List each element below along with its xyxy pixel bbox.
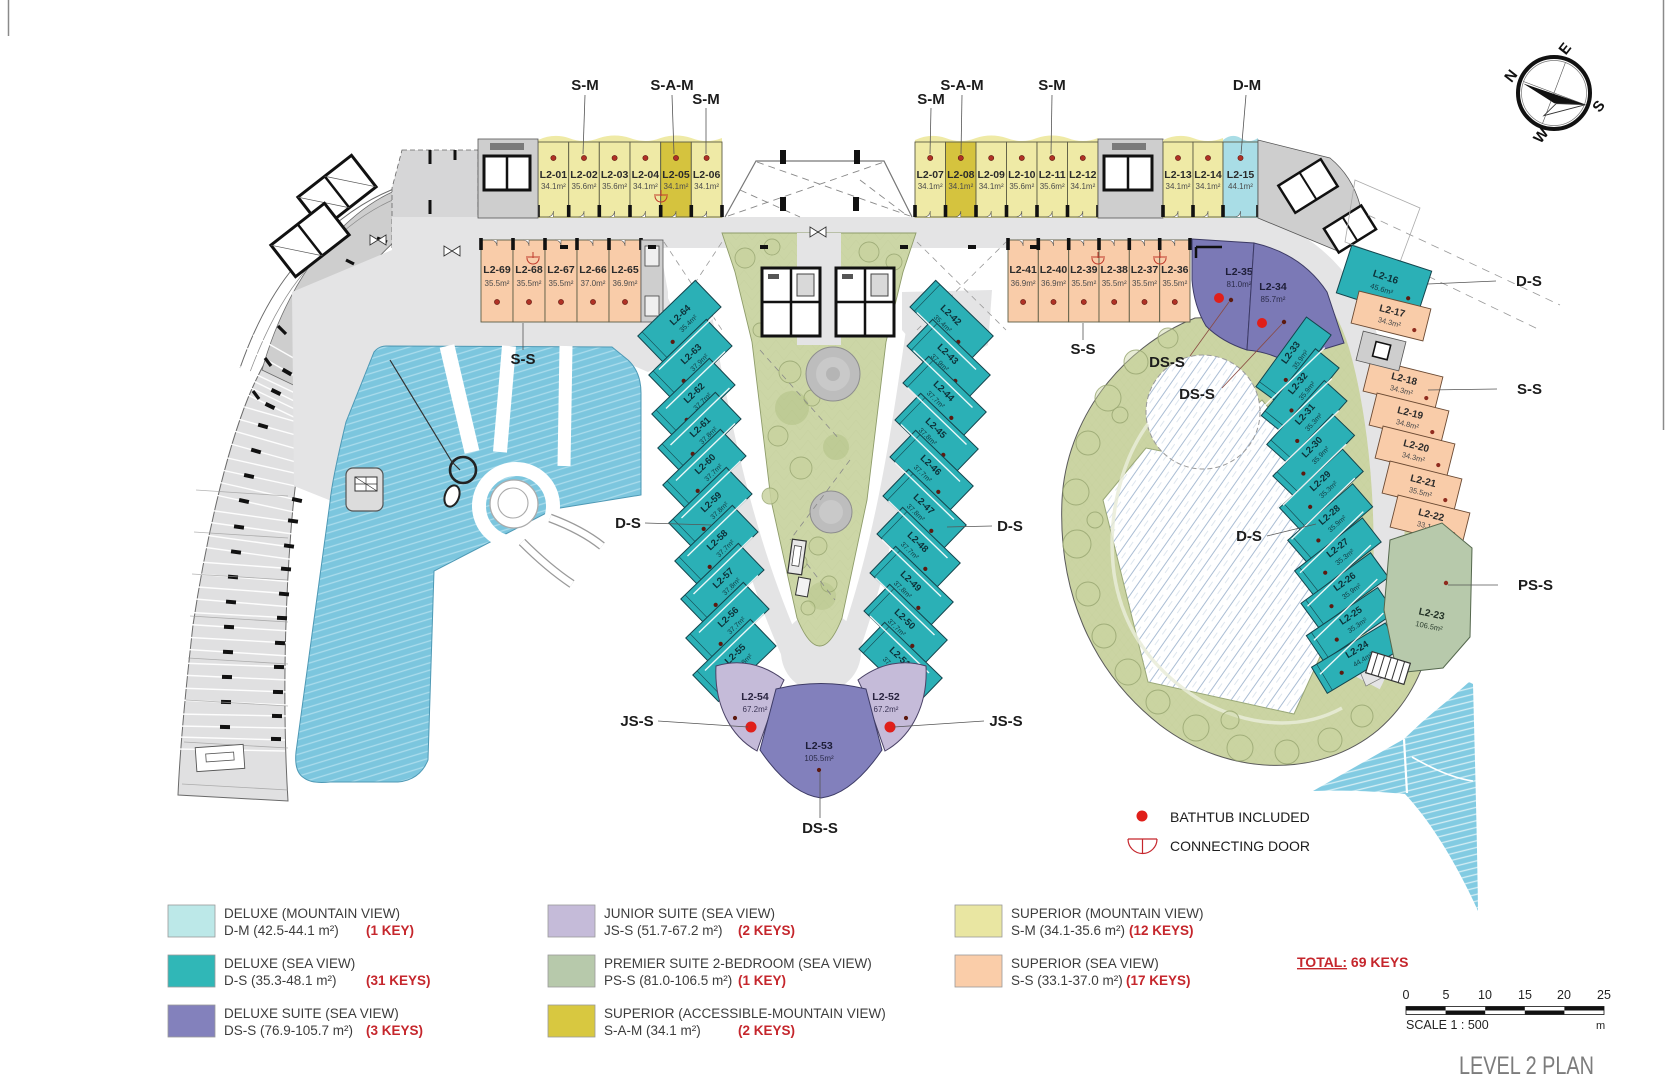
svg-text:(31 KEYS): (31 KEYS) — [366, 973, 431, 988]
svg-text:L2-04: L2-04 — [632, 169, 660, 181]
svg-text:35.5m²: 35.5m² — [517, 279, 542, 288]
svg-text:35.5m²: 35.5m² — [1162, 279, 1187, 288]
svg-text:L2-08: L2-08 — [947, 169, 975, 181]
svg-text:34.1m²: 34.1m² — [1196, 182, 1221, 191]
svg-text:L2-11: L2-11 — [1039, 169, 1066, 181]
svg-text:34.1m²: 34.1m² — [918, 182, 943, 191]
svg-text:LEVEL 2 PLAN: LEVEL 2 PLAN — [1459, 1052, 1594, 1080]
svg-text:10: 10 — [1478, 988, 1492, 1002]
svg-text:S-M: S-M — [692, 91, 720, 108]
svg-text:S-A-M (34.1 m²): S-A-M (34.1 m²) — [604, 1023, 701, 1038]
svg-text:L2-07: L2-07 — [916, 169, 944, 181]
svg-text:L2-52: L2-52 — [872, 691, 900, 703]
svg-text:DELUXE (SEA VIEW): DELUXE (SEA VIEW) — [224, 956, 355, 971]
svg-text:67.2m²: 67.2m² — [743, 705, 768, 714]
svg-text:5: 5 — [1443, 988, 1450, 1002]
svg-text:L2-41: L2-41 — [1009, 264, 1037, 276]
svg-text:DS-S: DS-S — [802, 820, 838, 837]
svg-text:DELUXE SUITE (SEA VIEW): DELUXE SUITE (SEA VIEW) — [224, 1006, 399, 1021]
svg-text:S-S: S-S — [1070, 341, 1095, 358]
svg-text:L2-12: L2-12 — [1069, 169, 1097, 181]
svg-text:JS-S: JS-S — [989, 713, 1022, 730]
svg-text:CONNECTING DOOR: CONNECTING DOOR — [1170, 838, 1310, 854]
svg-text:D-S: D-S — [1236, 528, 1262, 545]
svg-text:DS-S: DS-S — [1149, 354, 1185, 371]
svg-text:25: 25 — [1597, 988, 1611, 1002]
svg-text:L2-34: L2-34 — [1259, 281, 1287, 293]
svg-text:35.5m²: 35.5m² — [1132, 279, 1157, 288]
svg-text:(1 KEY): (1 KEY) — [366, 923, 414, 938]
svg-text:L2-69: L2-69 — [483, 264, 511, 276]
svg-text:34.1m²: 34.1m² — [541, 182, 566, 191]
svg-text:D-S: D-S — [997, 518, 1023, 535]
svg-text:JS-S (51.7-67.2 m²): JS-S (51.7-67.2 m²) — [604, 923, 723, 938]
svg-text:L2-67: L2-67 — [547, 264, 575, 276]
svg-text:m: m — [1596, 1020, 1605, 1032]
svg-text:D-M: D-M — [1233, 77, 1261, 94]
svg-text:D-M (42.5-44.1 m²): D-M (42.5-44.1 m²) — [224, 923, 339, 938]
svg-text:D-S (35.3-48.1 m²): D-S (35.3-48.1 m²) — [224, 973, 337, 988]
svg-text:34.1m²: 34.1m² — [979, 182, 1004, 191]
svg-text:35.5m²: 35.5m² — [485, 279, 510, 288]
svg-text:L2-03: L2-03 — [601, 169, 629, 181]
svg-text:S-M: S-M — [571, 77, 599, 94]
svg-text:S-M: S-M — [1038, 77, 1066, 94]
svg-text:L2-05: L2-05 — [662, 169, 690, 181]
svg-text:34.1m²: 34.1m² — [633, 182, 658, 191]
svg-text:(3 KEYS): (3 KEYS) — [366, 1023, 423, 1038]
svg-text:44.1m²: 44.1m² — [1228, 182, 1253, 191]
svg-text:(2 KEYS): (2 KEYS) — [738, 923, 795, 938]
svg-text:L2-65: L2-65 — [611, 264, 639, 276]
svg-text:TOTAL: 69 KEYS: TOTAL: 69 KEYS — [1297, 954, 1409, 970]
svg-text:SUPERIOR (SEA VIEW): SUPERIOR (SEA VIEW) — [1011, 956, 1159, 971]
svg-text:34.1m²: 34.1m² — [664, 182, 689, 191]
svg-text:L2-36: L2-36 — [1161, 264, 1189, 276]
svg-text:L2-38: L2-38 — [1100, 264, 1128, 276]
svg-text:DS-S: DS-S — [1179, 386, 1215, 403]
svg-text:L2-40: L2-40 — [1040, 264, 1068, 276]
svg-text:PREMIER SUITE 2-BEDROOM (SEA V: PREMIER SUITE 2-BEDROOM (SEA VIEW) — [604, 956, 872, 971]
svg-text:S-A-M: S-A-M — [940, 77, 983, 94]
svg-text:36.9m²: 36.9m² — [1041, 279, 1066, 288]
svg-text:L2-14: L2-14 — [1194, 169, 1222, 181]
svg-text:81.0m²: 81.0m² — [1227, 280, 1252, 289]
svg-text:0: 0 — [1403, 988, 1410, 1002]
svg-text:DS-S (76.9-105.7 m²): DS-S (76.9-105.7 m²) — [224, 1023, 353, 1038]
svg-text:67.2m²: 67.2m² — [874, 705, 899, 714]
svg-text:(12 KEYS): (12 KEYS) — [1129, 923, 1194, 938]
svg-text:SUPERIOR (ACCESSIBLE-MOUNTAIN: SUPERIOR (ACCESSIBLE-MOUNTAIN VIEW) — [604, 1006, 886, 1021]
svg-text:S-A-M: S-A-M — [650, 77, 693, 94]
svg-text:85.7m²: 85.7m² — [1261, 295, 1286, 304]
svg-text:35.6m²: 35.6m² — [1040, 182, 1065, 191]
svg-text:(2 KEYS): (2 KEYS) — [738, 1023, 795, 1038]
svg-text:37.0m²: 37.0m² — [581, 279, 606, 288]
svg-text:BATHTUB INCLUDED: BATHTUB INCLUDED — [1170, 809, 1310, 825]
svg-text:JUNIOR SUITE (SEA VIEW): JUNIOR SUITE (SEA VIEW) — [604, 906, 775, 921]
svg-text:L2-66: L2-66 — [579, 264, 607, 276]
svg-text:L2-68: L2-68 — [515, 264, 543, 276]
svg-text:35.6m²: 35.6m² — [602, 182, 627, 191]
svg-text:L2-06: L2-06 — [693, 169, 721, 181]
svg-text:PS-S: PS-S — [1518, 577, 1553, 594]
svg-text:15: 15 — [1518, 988, 1532, 1002]
svg-text:JS-S: JS-S — [620, 713, 653, 730]
svg-text:L2-53: L2-53 — [805, 740, 833, 752]
svg-text:34.1m²: 34.1m² — [948, 182, 973, 191]
svg-text:D-S: D-S — [615, 515, 641, 532]
svg-text:35.5m²: 35.5m² — [549, 279, 574, 288]
svg-text:S-S (33.1-37.0 m²): S-S (33.1-37.0 m²) — [1011, 973, 1123, 988]
svg-text:SCALE 1 : 500: SCALE 1 : 500 — [1406, 1018, 1489, 1032]
svg-text:L2-09: L2-09 — [977, 169, 1005, 181]
svg-text:L2-13: L2-13 — [1164, 169, 1192, 181]
svg-text:L2-39: L2-39 — [1070, 264, 1098, 276]
svg-text:35.5m²: 35.5m² — [1071, 279, 1096, 288]
svg-text:S-S: S-S — [510, 351, 535, 368]
svg-text:D-S: D-S — [1516, 273, 1542, 290]
svg-text:35.6m²: 35.6m² — [1009, 182, 1034, 191]
svg-text:34.1m²: 34.1m² — [1070, 182, 1095, 191]
svg-text:36.9m²: 36.9m² — [613, 279, 638, 288]
svg-text:L2-01: L2-01 — [540, 169, 568, 181]
svg-text:105.5m²: 105.5m² — [804, 754, 834, 763]
svg-text:DELUXE (MOUNTAIN VIEW): DELUXE (MOUNTAIN VIEW) — [224, 906, 400, 921]
svg-text:35.5m²: 35.5m² — [1102, 279, 1127, 288]
svg-text:PS-S (81.0-106.5 m²): PS-S (81.0-106.5 m²) — [604, 973, 732, 988]
svg-text:S-M (34.1-35.6 m²): S-M (34.1-35.6 m²) — [1011, 923, 1125, 938]
svg-text:SUPERIOR (MOUNTAIN VIEW): SUPERIOR (MOUNTAIN VIEW) — [1011, 906, 1204, 921]
svg-text:L2-02: L2-02 — [570, 169, 598, 181]
svg-text:36.9m²: 36.9m² — [1011, 279, 1036, 288]
svg-text:L2-37: L2-37 — [1131, 264, 1159, 276]
svg-text:35.6m²: 35.6m² — [572, 182, 597, 191]
svg-text:34.1m²: 34.1m² — [694, 182, 719, 191]
svg-text:20: 20 — [1557, 988, 1571, 1002]
svg-text:S-S: S-S — [1517, 381, 1542, 398]
svg-text:34.1m²: 34.1m² — [1166, 182, 1191, 191]
svg-text:L2-15: L2-15 — [1227, 169, 1255, 181]
svg-text:(17 KEYS): (17 KEYS) — [1126, 973, 1191, 988]
svg-text:L2-35: L2-35 — [1225, 266, 1253, 278]
svg-text:L2-10: L2-10 — [1008, 169, 1036, 181]
svg-text:L2-54: L2-54 — [741, 691, 769, 703]
svg-text:(1 KEY): (1 KEY) — [738, 973, 786, 988]
